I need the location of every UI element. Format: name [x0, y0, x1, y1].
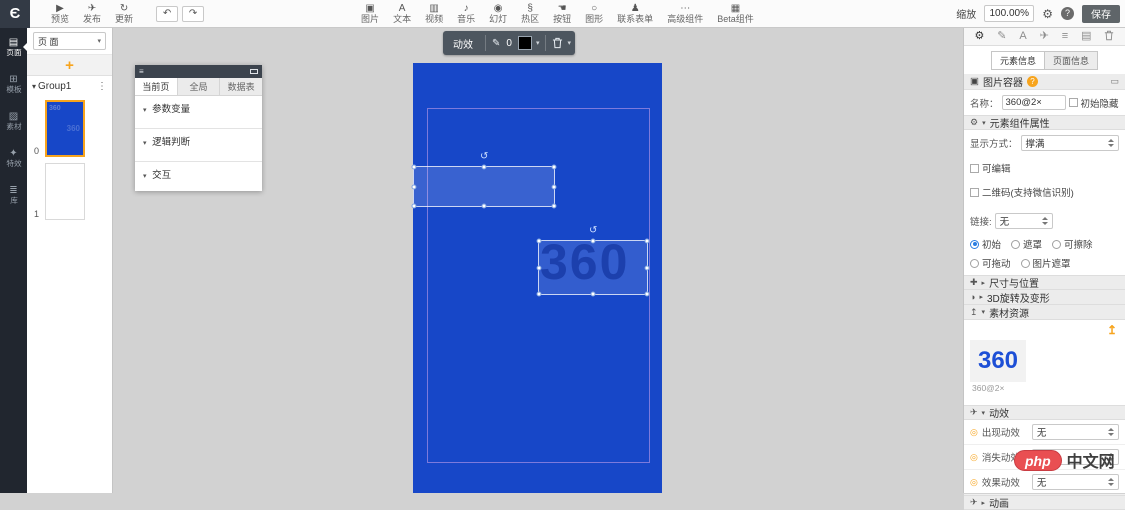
- radio-icon: [1052, 240, 1061, 249]
- group-label: Group1: [38, 81, 71, 92]
- list-icon[interactable]: ≡: [1062, 31, 1068, 42]
- action-effect-value: 无: [1037, 475, 1047, 489]
- insert-image-button[interactable]: ▣ 图片: [354, 0, 386, 28]
- insert-text-button[interactable]: A 文本: [386, 0, 418, 28]
- border-width-value: 0: [506, 38, 512, 49]
- collapse-icon[interactable]: ▭: [1110, 76, 1119, 87]
- page-thumb-wrap: 1: [45, 163, 85, 220]
- qrcode-row: 二维码(支持微信识别): [964, 180, 1125, 204]
- selection-handle[interactable]: [645, 292, 650, 297]
- rail-library-label: 库: [10, 196, 18, 205]
- rail-item-library[interactable]: ≣ 库: [0, 176, 27, 213]
- name-row: 名称： 初始隐藏: [964, 90, 1125, 115]
- insert-hotzone-label: 热区: [521, 14, 539, 24]
- video-icon: ▥: [429, 3, 438, 14]
- select-stepper: [1042, 217, 1048, 225]
- logic-panel: ≡ 当前页 全局 数据表 ▾ 参数变量 ▾ 逻辑判断 ▾ 交互: [135, 65, 262, 191]
- section-animation-label: 动画: [989, 495, 1009, 510]
- chevron-right-icon: ▸: [982, 279, 986, 287]
- qrcode-label: 二维码(支持微信识别): [982, 185, 1074, 199]
- action-effect-row: ◎ 效果动效 无: [964, 470, 1125, 495]
- selection-handle[interactable]: [537, 292, 542, 297]
- mode-radio-row-2: 可拖动 图片遮罩: [964, 254, 1125, 275]
- tab-global[interactable]: 全局: [178, 78, 221, 95]
- chevron-down-icon: ▾: [143, 173, 147, 180]
- update-label: 更新: [115, 14, 133, 24]
- radio-icon: [1021, 259, 1030, 268]
- component-type-label: 图片容器: [983, 74, 1023, 89]
- selection-handle[interactable]: [412, 204, 417, 209]
- bullet-icon: ◎: [970, 452, 978, 463]
- initial-hidden-checkbox[interactable]: [1069, 98, 1078, 107]
- section-size-position-label: 尺寸与位置: [989, 275, 1039, 290]
- send-icon: ✈: [970, 407, 978, 418]
- section-component-props-label: 元素组件属性: [990, 115, 1050, 130]
- rail-assets-label: 素材: [6, 122, 21, 131]
- logic-panel-tabs: 当前页 全局 数据表: [135, 78, 262, 96]
- section-interaction-label: 交互: [152, 170, 171, 181]
- radio-image-mask-label: 图片遮罩: [1033, 256, 1071, 270]
- selection-handle[interactable]: [482, 204, 487, 209]
- page-thumbnail-0[interactable]: 360 360: [45, 100, 85, 157]
- selection-handle[interactable]: [552, 165, 557, 170]
- move-icon: ✚: [970, 277, 978, 288]
- insert-hotzone-button[interactable]: § 热区: [514, 0, 546, 28]
- image-icon: ▣: [365, 3, 374, 14]
- animation-button[interactable]: 动效: [447, 36, 479, 51]
- rail-item-pages[interactable]: ▤ 页面: [0, 28, 27, 65]
- watermark-badge: php: [1014, 450, 1062, 471]
- section-effects[interactable]: ✈ ▾ 动效: [964, 405, 1125, 420]
- selected-element-360[interactable]: 360 ↺: [538, 240, 648, 295]
- chevron-down-icon: ▾: [97, 37, 101, 45]
- radio-erasable-label: 可擦除: [1064, 237, 1093, 251]
- insert-image-label: 图片: [361, 14, 379, 24]
- chevron-down-icon: ▾: [143, 107, 147, 114]
- link-value: 无: [1000, 214, 1010, 228]
- insert-music-label: 音乐: [457, 14, 475, 24]
- link-row: 链接: 无: [964, 208, 1125, 234]
- color-swatch[interactable]: [518, 36, 532, 50]
- selected-element-1[interactable]: ↺: [413, 166, 555, 207]
- appear-effect-row: ◎ 出现动效 无: [964, 420, 1125, 445]
- shape-icon: ○: [591, 3, 597, 14]
- app-logo[interactable]: Є: [0, 0, 30, 28]
- section-logic-label: 逻辑判断: [152, 137, 190, 148]
- ellipsis-icon: ⋯: [680, 3, 690, 14]
- selection-handle[interactable]: [645, 265, 650, 270]
- gear-icon[interactable]: ⚙: [974, 31, 984, 42]
- insert-video-button[interactable]: ▥ 视频: [418, 0, 450, 28]
- inspector-panel: ⚙ ✎ A ✈ ≡ ▤ 元素信息 页面信息 ▣ 图片容器 ? ▭ 名称： 初始隐…: [963, 28, 1125, 493]
- radio-image-mask[interactable]: 图片遮罩: [1021, 256, 1071, 270]
- canvas-area[interactable]: ↺ 360 ↺ 动效 ✎ 0 ▾ ▾ ≡ 当前页 全局 数据表: [113, 28, 963, 493]
- watermark-text: 中文网: [1067, 448, 1115, 472]
- upload-icon: ↥: [970, 307, 978, 318]
- section-parameters-label: 参数变量: [152, 104, 190, 115]
- page-select-row: 页 面 ▾: [27, 28, 112, 55]
- tab-current-page[interactable]: 当前页: [135, 78, 178, 95]
- rotate-handle[interactable]: ↺: [480, 152, 488, 162]
- asset-thumbnail[interactable]: 360: [970, 340, 1026, 382]
- template-icon: ⊞: [9, 74, 17, 85]
- rotate-handle[interactable]: ↺: [589, 226, 597, 236]
- action-effect-select[interactable]: 无: [1032, 474, 1119, 490]
- radio-draggable-label: 可拖动: [982, 256, 1011, 270]
- section-component-props[interactable]: ⚙ ▾ 元素组件属性: [964, 115, 1125, 130]
- artboard[interactable]: ↺ 360 ↺: [413, 63, 662, 493]
- trash-icon: [552, 37, 563, 49]
- tab-page-info[interactable]: 页面信息: [1045, 51, 1098, 70]
- tab-datasheet[interactable]: 数据表: [220, 78, 262, 95]
- radio-icon: [970, 240, 979, 249]
- hotzone-icon: §: [527, 3, 533, 14]
- send-icon: ✈: [970, 497, 978, 508]
- page-index: 1: [34, 209, 39, 219]
- chevron-down-icon[interactable]: ▾: [536, 39, 540, 47]
- editable-label: 可编辑: [982, 161, 1011, 175]
- insert-advanced-button[interactable]: ⋯ 高级组件: [660, 0, 710, 28]
- divider: [485, 35, 486, 51]
- radio-icon: [970, 259, 979, 268]
- bullet-icon: ◎: [970, 477, 978, 488]
- radio-initial[interactable]: 初始: [970, 237, 1001, 251]
- selection-handle[interactable]: [412, 184, 417, 189]
- sphere-icon: ◑: [970, 292, 975, 302]
- editable-row: 可编辑: [964, 156, 1125, 180]
- page-type-value: 页 面: [38, 35, 59, 48]
- radio-erasable[interactable]: 可擦除: [1052, 237, 1093, 251]
- help-icon[interactable]: ?: [1027, 76, 1038, 87]
- delete-icon-button[interactable]: [1104, 30, 1114, 44]
- chevron-right-icon: ▸: [982, 499, 986, 507]
- person-icon: ♟: [631, 3, 640, 14]
- publish-icon: ✈: [88, 3, 96, 14]
- insert-button-button[interactable]: ☚ 按钮: [546, 0, 578, 28]
- undo-icon: ↶: [163, 8, 171, 19]
- selection-handle[interactable]: [412, 165, 417, 170]
- help-icon[interactable]: ?: [1061, 7, 1074, 20]
- section-size-position[interactable]: ✚ ▸ 尺寸与位置: [964, 275, 1125, 290]
- page-thumbnail-1[interactable]: [45, 163, 85, 220]
- inspector-icon-strip: ⚙ ✎ A ✈ ≡ ▤: [964, 28, 1125, 46]
- selection-handle[interactable]: [482, 165, 487, 170]
- zoom-label: 缩放: [956, 6, 976, 21]
- insert-contact-form-label: 联系表单: [617, 14, 653, 24]
- insert-slideshow-label: 幻灯: [489, 14, 507, 24]
- undo-button[interactable]: ↶: [156, 6, 178, 22]
- asset-caption: 360@2×: [972, 383, 1125, 393]
- selection-handle[interactable]: [537, 239, 542, 244]
- page-thumb-wrap: 360 360 0: [45, 100, 85, 157]
- chevron-down-icon[interactable]: ▾: [567, 39, 571, 47]
- pencil-icon[interactable]: ✎: [997, 31, 1006, 42]
- topbar-right-group: 缩放 ⚙ ? 保存: [956, 5, 1125, 23]
- section-assets-label: 素材资源: [989, 305, 1029, 320]
- image-icon: ▣: [970, 76, 979, 87]
- publish-button[interactable]: ✈ 发布: [76, 0, 108, 28]
- insert-music-button[interactable]: ♪ 音乐: [450, 0, 482, 28]
- select-stepper: [1108, 428, 1114, 436]
- history-group: ↶ ↷: [156, 6, 204, 22]
- insert-shape-button[interactable]: ○ 图形: [578, 0, 610, 28]
- radio-initial-label: 初始: [982, 237, 1001, 251]
- tab-element-info[interactable]: 元素信息: [991, 51, 1045, 70]
- bullet-icon: ◎: [970, 427, 978, 438]
- rail-item-assets[interactable]: ▨ 素材: [0, 102, 27, 139]
- insert-advanced-label: 高级组件: [667, 14, 703, 24]
- action-effect-label: 效果动效: [982, 475, 1028, 489]
- rail-item-effects[interactable]: ✦ 特效: [0, 139, 27, 176]
- rail-effects-label: 特效: [6, 159, 21, 168]
- chevron-down-icon: ▾: [982, 308, 986, 316]
- trash-icon: [1104, 30, 1114, 41]
- file-actions-group: ▶ 预览 ✈ 发布 ↻ 更新: [44, 0, 140, 28]
- appear-effect-label: 出现动效: [982, 425, 1028, 439]
- section-3d-transform[interactable]: ◑ ▸ 3D旋转及变形: [964, 290, 1125, 305]
- chevron-down-icon: ▾: [143, 140, 147, 147]
- more-options-icon[interactable]: ⋮: [97, 81, 107, 92]
- chevron-down-icon: ▾: [982, 119, 986, 127]
- settings-gear-icon[interactable]: ⚙: [1042, 7, 1053, 21]
- selection-handle[interactable]: [552, 184, 557, 189]
- radio-icon: [1011, 240, 1020, 249]
- insert-shape-label: 图形: [585, 14, 603, 24]
- section-assets[interactable]: ↥ ▾ 素材资源: [964, 305, 1125, 320]
- element-360-text: 360: [540, 233, 629, 291]
- chevron-down-icon: ▾: [982, 409, 986, 417]
- save-button[interactable]: 保存: [1082, 5, 1120, 23]
- redo-icon: ↷: [189, 8, 197, 19]
- gear-icon: ⚙: [970, 117, 978, 128]
- section-parameters[interactable]: ▾ 参数变量: [135, 96, 262, 129]
- page-type-select[interactable]: 页 面 ▾: [33, 32, 106, 50]
- element-context-toolbar: 动效 ✎ 0 ▾ ▾: [443, 31, 575, 55]
- rail-item-templates[interactable]: ⊞ 模板: [0, 65, 27, 102]
- section-animation[interactable]: ✈ ▸ 动画: [964, 495, 1125, 510]
- select-stepper: [1108, 478, 1114, 486]
- text-icon: A: [399, 3, 406, 14]
- top-toolbar: Є ▶ 预览 ✈ 发布 ↻ 更新 ↶ ↷ ▣ 图片 A 文本 ▥ 视频: [0, 0, 1125, 28]
- link-label: 链接:: [970, 214, 992, 228]
- thumb-preview-text: 360: [49, 105, 61, 112]
- selection-handle[interactable]: [591, 292, 596, 297]
- insert-slideshow-button[interactable]: ◉ 幻灯: [482, 0, 514, 28]
- upload-icon[interactable]: ↥: [1107, 323, 1117, 337]
- pencil-icon[interactable]: ✎: [492, 38, 500, 49]
- update-button[interactable]: ↻ 更新: [108, 0, 140, 28]
- appear-effect-select[interactable]: 无: [1032, 424, 1119, 440]
- send-icon[interactable]: ✈: [1040, 31, 1049, 42]
- initial-hidden-label: 初始隐藏: [1081, 96, 1119, 110]
- info-tabs: 元素信息 页面信息: [964, 46, 1125, 74]
- logic-panel-header[interactable]: ≡: [135, 65, 262, 78]
- section-interaction[interactable]: ▾ 交互: [135, 162, 262, 191]
- insert-elements-group: ▣ 图片 A 文本 ▥ 视频 ♪ 音乐 ◉ 幻灯 § 热区 ☚ 按钮 ○ 图形: [354, 0, 761, 28]
- display-mode-value: 撑满: [1026, 136, 1045, 150]
- display-mode-select[interactable]: 撑满: [1021, 135, 1119, 151]
- selection-handle[interactable]: [591, 239, 596, 244]
- upload-row: ↥: [964, 320, 1125, 337]
- asset-thumb-text: 360: [978, 347, 1018, 375]
- selection-handle[interactable]: [552, 204, 557, 209]
- radio-mask-label: 遮罩: [1023, 237, 1042, 251]
- selection-handle[interactable]: [645, 239, 650, 244]
- insert-video-label: 视频: [425, 14, 443, 24]
- page-index: 0: [34, 146, 39, 156]
- redo-button[interactable]: ↷: [182, 6, 204, 22]
- page-icon: ▤: [9, 37, 18, 48]
- page-group-row[interactable]: ▾ Group1 ⋮: [27, 76, 112, 94]
- section-effects-label: 动效: [989, 405, 1009, 420]
- mode-radio-row-1: 初始 遮罩 可擦除: [964, 234, 1125, 254]
- divider: [545, 35, 546, 51]
- document-icon[interactable]: ▤: [1081, 31, 1091, 42]
- menu-icon[interactable]: ≡: [139, 68, 144, 76]
- text-tool-icon[interactable]: A: [1019, 31, 1026, 42]
- slideshow-icon: ◉: [494, 3, 503, 14]
- selection-handle[interactable]: [537, 265, 542, 270]
- chevron-right-icon: ▸: [979, 293, 983, 301]
- insert-text-label: 文本: [393, 14, 411, 24]
- minimize-icon[interactable]: [250, 69, 258, 74]
- effects-icon: ✦: [9, 148, 17, 159]
- library-icon: ≣: [9, 185, 17, 196]
- pages-panel: 页 面 ▾ + ▾ Group1 ⋮ 360 360 0 1: [27, 28, 113, 493]
- name-label: 名称：: [970, 96, 999, 110]
- select-stepper: [1108, 139, 1114, 147]
- rail-templates-label: 模板: [6, 85, 21, 94]
- qrcode-checkbox[interactable]: [970, 188, 979, 197]
- insert-button-label: 按钮: [553, 14, 571, 24]
- grid-icon: ▦: [731, 3, 740, 14]
- refresh-icon: ↻: [120, 3, 128, 14]
- insert-contact-form-button[interactable]: ♟ 联系表单: [610, 0, 660, 28]
- left-nav-rail: ▤ 页面 ⊞ 模板 ▨ 素材 ✦ 特效 ≣ 库: [0, 28, 27, 493]
- editable-checkbox[interactable]: [970, 164, 979, 173]
- component-header: ▣ 图片容器 ? ▭: [964, 74, 1125, 90]
- publish-label: 发布: [83, 14, 101, 24]
- plus-icon: +: [65, 58, 74, 73]
- link-select[interactable]: 无: [995, 213, 1053, 229]
- display-mode-label: 显示方式：: [970, 136, 1018, 150]
- thumb-preview-text: 360: [67, 124, 80, 133]
- element-name-input[interactable]: [1002, 95, 1066, 110]
- music-icon: ♪: [464, 3, 469, 14]
- display-mode-row: 显示方式： 撑满: [964, 130, 1125, 156]
- hand-pointer-icon: ☚: [558, 3, 567, 14]
- insert-beta-button[interactable]: ▦ Beta组件: [710, 0, 761, 28]
- preview-label: 预览: [51, 14, 69, 24]
- preview-button[interactable]: ▶ 预览: [44, 0, 76, 28]
- radio-draggable[interactable]: 可拖动: [970, 256, 1011, 270]
- chevron-down-icon: ▾: [32, 82, 36, 91]
- site-watermark: php 中文网: [1014, 448, 1115, 472]
- add-page-button[interactable]: +: [27, 55, 112, 76]
- zoom-input[interactable]: [984, 5, 1034, 22]
- delete-button[interactable]: [552, 37, 563, 49]
- section-3d-transform-label: 3D旋转及变形: [987, 290, 1050, 305]
- asset-icon: ▨: [9, 111, 18, 122]
- insert-beta-label: Beta组件: [717, 14, 754, 24]
- section-logic[interactable]: ▾ 逻辑判断: [135, 129, 262, 162]
- rail-pages-label: 页面: [6, 48, 21, 57]
- preview-icon: ▶: [56, 3, 64, 14]
- appear-effect-value: 无: [1037, 425, 1047, 439]
- radio-mask[interactable]: 遮罩: [1011, 237, 1042, 251]
